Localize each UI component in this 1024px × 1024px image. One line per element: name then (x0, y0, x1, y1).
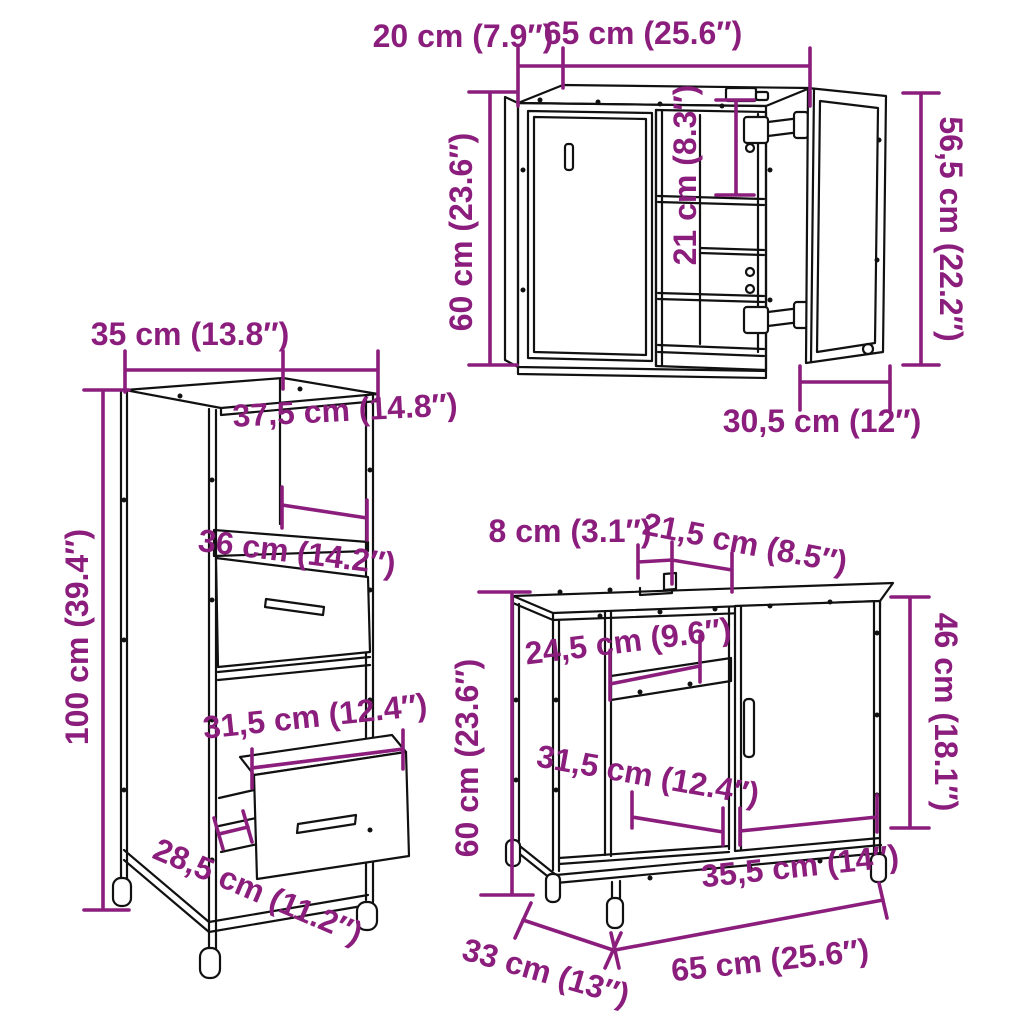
sink-cabinet-depth-label: 33 cm (13″) (458, 931, 633, 1013)
diagram-canvas: 20 cm (7.9″) 65 cm (25.6″) 60 cm (23.6″)… (0, 0, 1024, 1024)
sink-cabinet-notch-width-label: 8 cm (3.1″) (489, 513, 652, 549)
tall-cabinet-height-label: 100 cm (39.4″) (59, 529, 95, 745)
wall-cabinet-door-width-label: 30,5 cm (12″) (723, 403, 922, 439)
wall-cabinet-width-label: 65 cm (25.6″) (544, 15, 743, 51)
furniture-dimension-diagram: 20 cm (7.9″) 65 cm (25.6″) 60 cm (23.6″)… (0, 0, 1024, 1024)
wall-cabinet-door-height-label: 56,5 cm (22.2″) (933, 116, 969, 341)
tall-cabinet-depth-label: 35 cm (13.8″) (91, 316, 290, 352)
sink-cabinet-height-label: 60 cm (23.6″) (449, 659, 485, 858)
sink-cabinet-compartment-width-label: 31,5 cm (12.4″) (534, 738, 762, 813)
wall-cabinet-depth-label: 20 cm (7.9″) (373, 18, 554, 54)
wall-cabinet-inner-height-label: 21 cm (8.3″) (667, 85, 703, 266)
sink-cabinet-door-height-label: 46 cm (18.1″) (928, 613, 964, 812)
sink-cabinet-width-label: 65 cm (25.6″) (669, 932, 870, 989)
wall-cabinet-height-label: 60 cm (23.6″) (443, 133, 479, 332)
